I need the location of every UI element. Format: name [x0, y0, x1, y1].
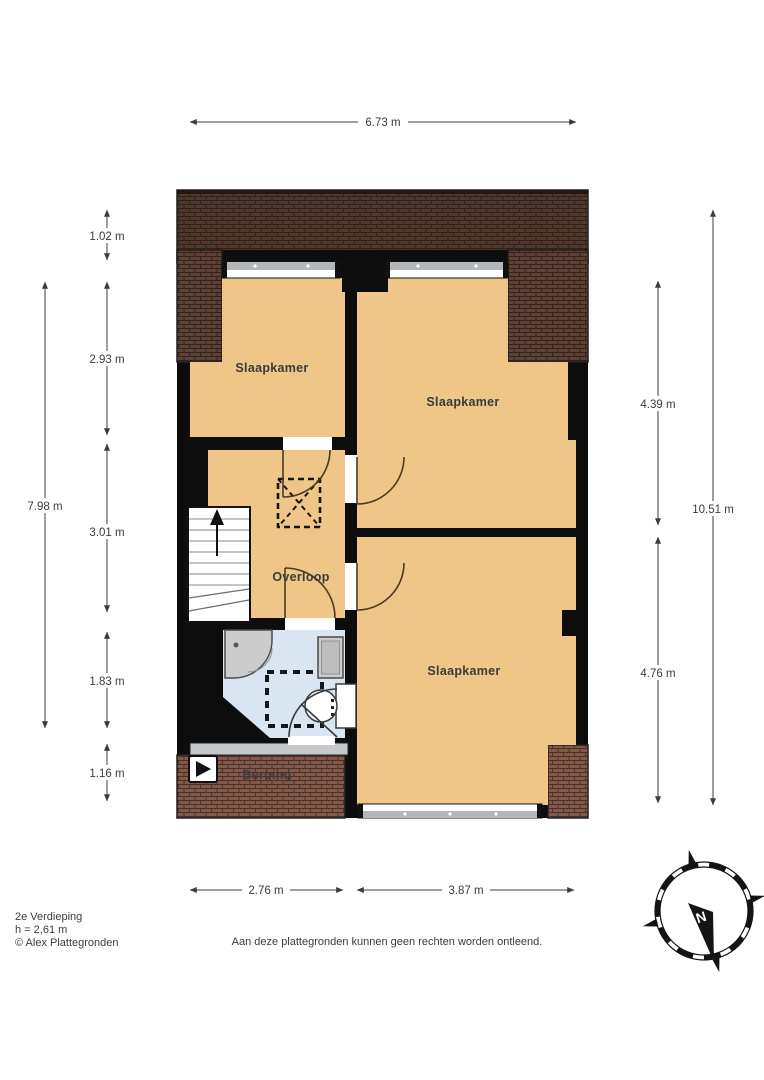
door-opening-bedroom-top-right	[345, 455, 357, 503]
window-top-left	[222, 262, 340, 278]
roof-window-icon	[189, 756, 217, 782]
dimension-left-total: 7.98 m	[27, 501, 62, 513]
compass-rose: N	[642, 849, 764, 973]
floor-plan-canvas: Slaapkamer Slaapkamer Slaapkamer Overloo…	[0, 0, 764, 1080]
dimension-left-seg-4: 1.83 m	[89, 676, 124, 688]
floor-plan-page: Slaapkamer Slaapkamer Slaapkamer Overloo…	[0, 0, 764, 1080]
ceiling-height-note: h = 2,61 m	[15, 924, 67, 936]
room-label-bedroom-bottom-right: Slaapkamer	[427, 664, 500, 678]
sink	[318, 637, 343, 678]
room-label-storage: Berging	[242, 768, 291, 782]
dimension-bottom-seg-2: 3.87 m	[448, 885, 483, 897]
dimension-top-total: 6.73 m	[365, 117, 400, 129]
dimension-left-seg-3: 3.01 m	[89, 527, 124, 539]
room-label-bedroom-top-left: Slaapkamer	[235, 361, 308, 375]
door-opening-bedroom-bottom-right	[345, 563, 357, 610]
dimension-left-seg-2: 2.93 m	[89, 354, 124, 366]
stairs	[188, 507, 250, 622]
dimension-bottom-seg-1: 2.76 m	[248, 885, 283, 897]
window-bottom	[358, 804, 542, 818]
wall-pier-between-windows	[342, 278, 388, 292]
roof-slope-bottom-right	[548, 745, 588, 818]
copyright-credit: © Alex Plattegronden	[15, 937, 119, 949]
room-label-bedroom-top-right: Slaapkamer	[426, 395, 499, 409]
roof-slope-top-right	[508, 250, 588, 362]
roof-slope-top-left	[177, 250, 222, 362]
window-top-right	[385, 262, 508, 278]
disclaimer: Aan deze plattegronden kunnen geen recht…	[232, 936, 543, 948]
dimension-right-total: 10.51 m	[692, 504, 734, 516]
door-opening-bathroom	[285, 618, 335, 630]
door-opening-bedroom-top-left	[283, 437, 332, 450]
room-label-landing: Overloop	[272, 570, 329, 584]
dimension-left-seg-1: 1.02 m	[89, 231, 124, 243]
dimension-left-seg-5: 1.16 m	[89, 768, 124, 780]
dimension-right-seg-2: 4.76 m	[640, 668, 675, 680]
dimension-right-seg-1: 4.39 m	[640, 399, 675, 411]
door-opening-storage	[288, 736, 335, 745]
floor-title: 2e Verdieping	[15, 911, 82, 923]
